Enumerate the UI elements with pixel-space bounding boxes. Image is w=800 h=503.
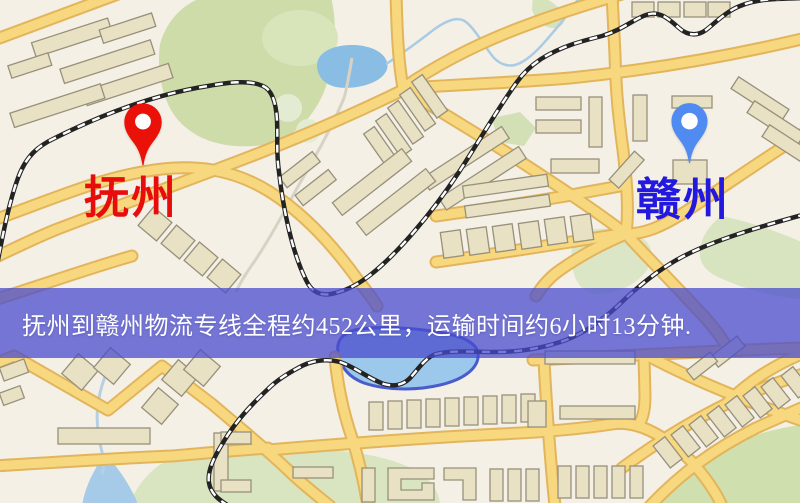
origin-pin-icon[interactable]: [121, 101, 165, 174]
route-info-banner: 抚州到赣州物流专线全程约452公里，运输时间约6小时13分钟.: [0, 288, 800, 358]
destination-pin-icon[interactable]: [668, 101, 711, 171]
screenshot-root: 抚州 赣州 抚州到赣州物流专线全程约452公里，运输时间约6小时13分钟.: [0, 0, 800, 503]
destination-label: 赣州: [636, 178, 730, 223]
destination-pin-hole: [681, 113, 698, 130]
destination-pin-body: [671, 103, 707, 163]
map-image: [0, 0, 800, 503]
origin-label: 抚州: [84, 176, 178, 221]
origin-pin-body: [124, 103, 161, 165]
route-info-text: 抚州到赣州物流专线全程约452公里，运输时间约6小时13分钟.: [22, 306, 692, 341]
origin-pin-hole: [135, 114, 151, 130]
